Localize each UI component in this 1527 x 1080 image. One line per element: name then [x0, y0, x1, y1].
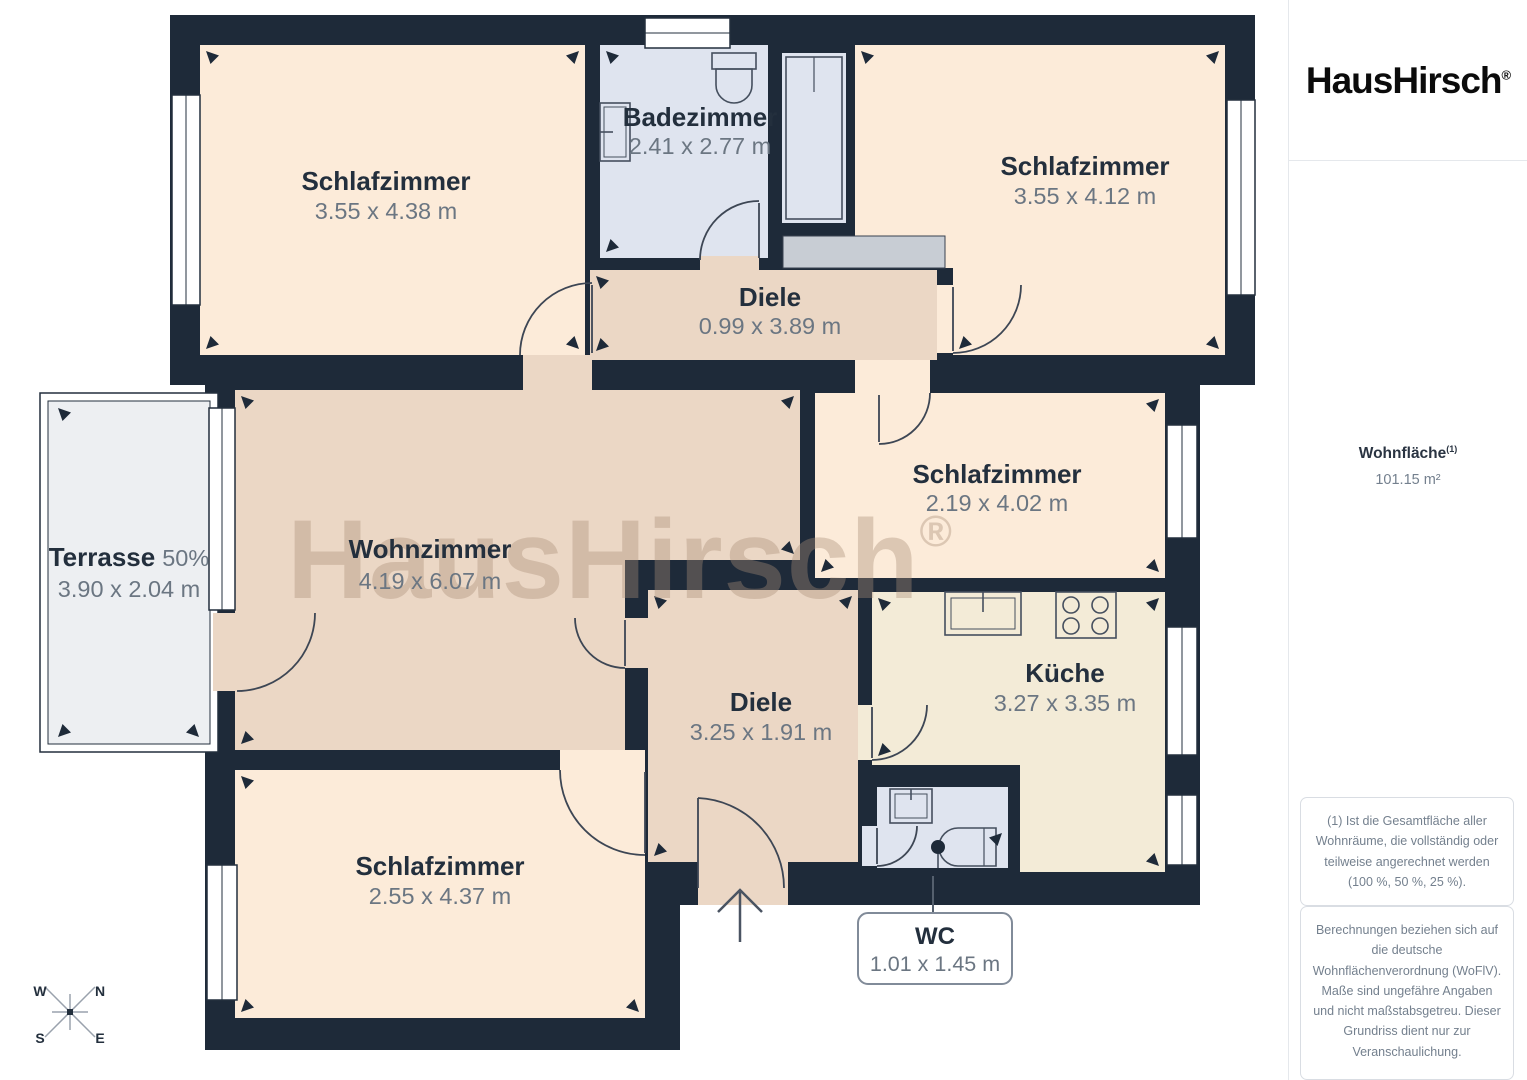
svg-text:3.55 x 4.12 m: 3.55 x 4.12 m — [1014, 183, 1156, 209]
svg-text:2.41 x 2.77 m: 2.41 x 2.77 m — [629, 133, 771, 159]
living-area-label: Wohnfläche(1) — [1289, 444, 1527, 463]
window-bedroom-mid-right — [1167, 425, 1197, 538]
svg-text:3.90 x 2.04 m: 3.90 x 2.04 m — [58, 576, 200, 602]
window-bedroom-bl-left — [207, 865, 237, 1000]
window-bedroom-tl-left — [172, 95, 200, 305]
brand-logo: HausHirsch® — [1289, 60, 1527, 102]
label-bedroom-top-right: Schlafzimmer 3.55 x 4.12 m — [1000, 151, 1169, 209]
living-area-value: 101.15 m² — [1289, 472, 1527, 488]
wardrobe — [783, 236, 945, 268]
window-kitchen-right-lower — [1167, 795, 1197, 865]
label-bathroom: Badezimmer 2.41 x 2.77 m — [623, 102, 778, 159]
disclaimer-box: Berechnungen beziehen sich auf die deuts… — [1300, 906, 1514, 1080]
label-bedroom-middle: Schlafzimmer 2.19 x 4.02 m — [912, 459, 1081, 516]
window-terrace-door — [209, 408, 235, 610]
svg-text:3.55 x 4.38 m: 3.55 x 4.38 m — [315, 198, 457, 224]
info-sidebar: HausHirsch® Wohnfläche(1) 101.15 m² (1) … — [1288, 0, 1527, 1080]
terrace — [40, 393, 218, 752]
floorplan-page: HausHirsch® Schlafzimmer 3.55 x 4.38 m B… — [0, 0, 1527, 1080]
window-bedroom-tr-right — [1227, 100, 1255, 295]
svg-text:0.99 x 3.89 m: 0.99 x 3.89 m — [699, 313, 841, 339]
svg-text:Diele: Diele — [730, 687, 792, 717]
svg-text:Schlafzimmer: Schlafzimmer — [301, 166, 470, 196]
svg-text:Schlafzimmer: Schlafzimmer — [912, 459, 1081, 489]
svg-text:Terrasse50%: Terrasse50% — [49, 542, 210, 572]
living-area-block: Wohnfläche(1) 101.15 m² — [1289, 444, 1527, 488]
compass-south: S — [35, 1030, 44, 1046]
compass-north: N — [95, 983, 105, 999]
svg-text:Schlafzimmer: Schlafzimmer — [355, 851, 524, 881]
svg-text:Schlafzimmer: Schlafzimmer — [1000, 151, 1169, 181]
svg-text:4.19 x 6.07 m: 4.19 x 6.07 m — [359, 568, 501, 594]
svg-text:WC: WC — [915, 923, 955, 950]
svg-text:Diele: Diele — [739, 282, 801, 312]
svg-text:2.55 x 4.37 m: 2.55 x 4.37 m — [369, 883, 511, 909]
svg-text:Badezimmer: Badezimmer — [623, 102, 778, 132]
compass-west: W — [33, 983, 47, 999]
label-bedroom-bottom: Schlafzimmer 2.55 x 4.37 m — [355, 851, 524, 909]
svg-text:3.27 x 3.35 m: 3.27 x 3.35 m — [994, 690, 1136, 716]
compass: W N S E — [33, 983, 105, 1046]
label-bedroom-top-left: Schlafzimmer 3.55 x 4.38 m — [301, 166, 470, 224]
footnote-marker: (1) — [1446, 444, 1457, 454]
floor-plan: HausHirsch® Schlafzimmer 3.55 x 4.38 m B… — [0, 0, 1288, 1080]
registered-mark: ® — [1502, 68, 1511, 83]
svg-text:3.25 x 1.91 m: 3.25 x 1.91 m — [690, 719, 832, 745]
svg-text:2.19 x 4.02 m: 2.19 x 4.02 m — [926, 490, 1068, 516]
disclaimer-text: Berechnungen beziehen sich auf die deuts… — [1313, 923, 1502, 1059]
window-bathroom-top — [645, 18, 730, 48]
compass-east: E — [95, 1030, 104, 1046]
window-kitchen-right-upper — [1167, 627, 1197, 755]
sidebar-divider — [1289, 160, 1527, 161]
footnote-box: (1) Ist die Gesamtfläche aller Wohnräume… — [1300, 797, 1514, 906]
svg-text:1.01 x 1.45 m: 1.01 x 1.45 m — [870, 952, 1000, 976]
svg-text:Wohnzimmer: Wohnzimmer — [349, 534, 512, 564]
svg-text:Küche: Küche — [1025, 658, 1104, 688]
